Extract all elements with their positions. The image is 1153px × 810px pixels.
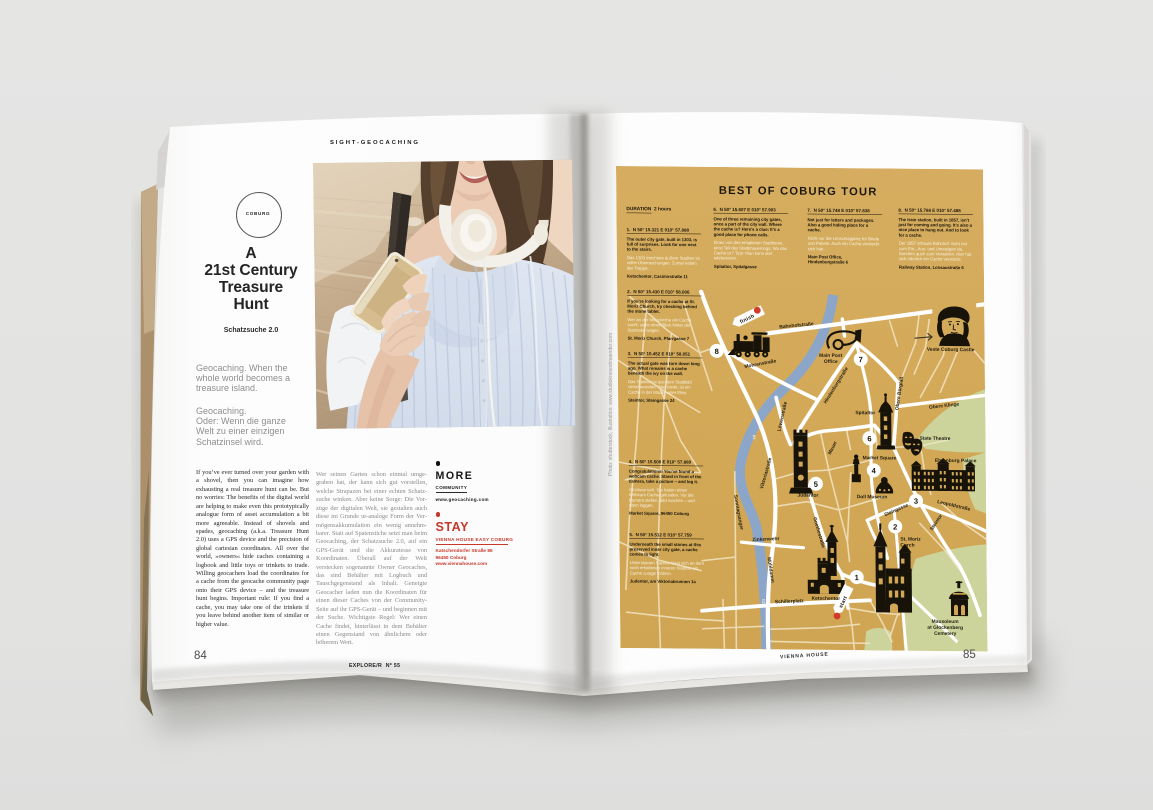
svg-text:4: 4 [871,466,876,475]
svg-text:Main Post: Main Post [819,353,843,359]
svg-text:Spitaltor: Spitaltor [855,410,875,416]
svg-text:3: 3 [913,497,917,506]
svg-text:Ehrenburg Palace: Ehrenburg Palace [934,458,976,464]
svg-text:Mausoleum: Mausoleum [931,619,959,625]
svg-text:7: 7 [858,355,862,364]
svg-text:2: 2 [893,522,897,531]
svg-text:Veste Coburg Castle: Veste Coburg Castle [926,347,974,353]
svg-text:6: 6 [867,434,871,443]
svg-text:Doll Museum: Doll Museum [856,494,887,500]
svg-text:Judentor: Judentor [797,493,818,499]
svg-text:8: 8 [714,347,718,356]
svg-text:BEST OF COBURG TOUR: BEST OF COBURG TOUR [718,185,877,198]
svg-text:1: 1 [854,573,859,582]
svg-text:Zinkenwehr: Zinkenwehr [752,536,780,543]
svg-text:Ketschentor: Ketschentor [811,596,840,602]
svg-text:St. Moriz: St. Moriz [900,537,921,543]
svg-text:5: 5 [813,480,818,489]
svg-text:Curch: Curch [900,543,914,549]
svg-text:Market Square: Market Square [862,455,896,461]
svg-text:Office: Office [823,359,837,365]
svg-text:at Glockenberg: at Glockenberg [927,625,963,631]
svg-text:State Theatre: State Theatre [919,436,950,442]
svg-text:Cemetery: Cemetery [934,631,957,637]
